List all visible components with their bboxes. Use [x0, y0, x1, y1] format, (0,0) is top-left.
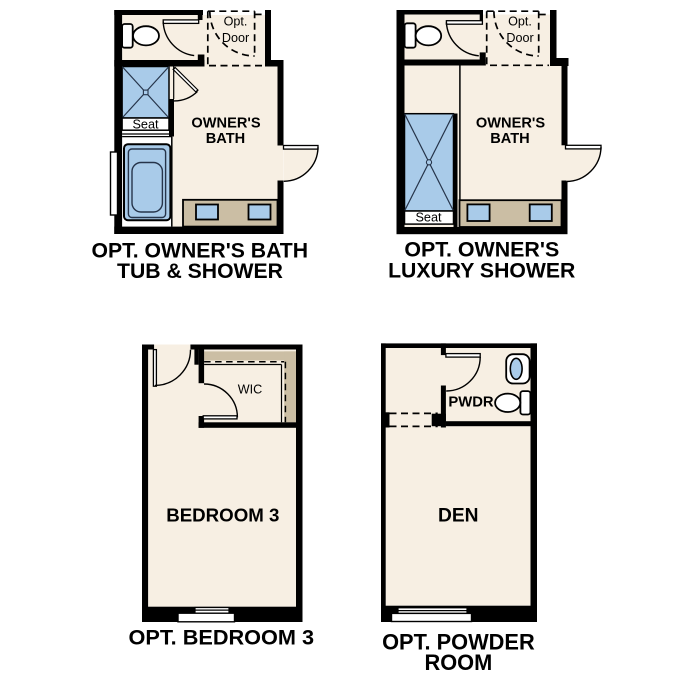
svg-text:TUB & SHOWER: TUB & SHOWER	[117, 260, 283, 283]
svg-text:OWNER'S: OWNER'S	[476, 116, 545, 132]
svg-text:OPT. BEDROOM 3: OPT. BEDROOM 3	[129, 625, 315, 650]
svg-text:WIC: WIC	[238, 382, 262, 396]
svg-text:BEDROOM 3: BEDROOM 3	[166, 504, 279, 525]
svg-text:OPT. OWNER'S: OPT. OWNER'S	[404, 238, 559, 262]
svg-text:Seat: Seat	[415, 211, 442, 225]
svg-text:Opt.: Opt.	[224, 14, 248, 28]
svg-text:Door: Door	[506, 31, 533, 45]
svg-text:OWNER'S: OWNER'S	[191, 116, 260, 132]
svg-text:Opt.: Opt.	[508, 14, 532, 28]
svg-text:Seat: Seat	[132, 118, 159, 132]
svg-text:DEN: DEN	[438, 505, 479, 526]
svg-text:BATH: BATH	[206, 131, 245, 147]
svg-text:LUXURY SHOWER: LUXURY SHOWER	[388, 260, 575, 283]
svg-text:PWDR: PWDR	[448, 394, 494, 410]
svg-text:Door: Door	[222, 31, 249, 45]
svg-text:BATH: BATH	[490, 131, 529, 147]
svg-text:ROOM: ROOM	[424, 650, 492, 675]
